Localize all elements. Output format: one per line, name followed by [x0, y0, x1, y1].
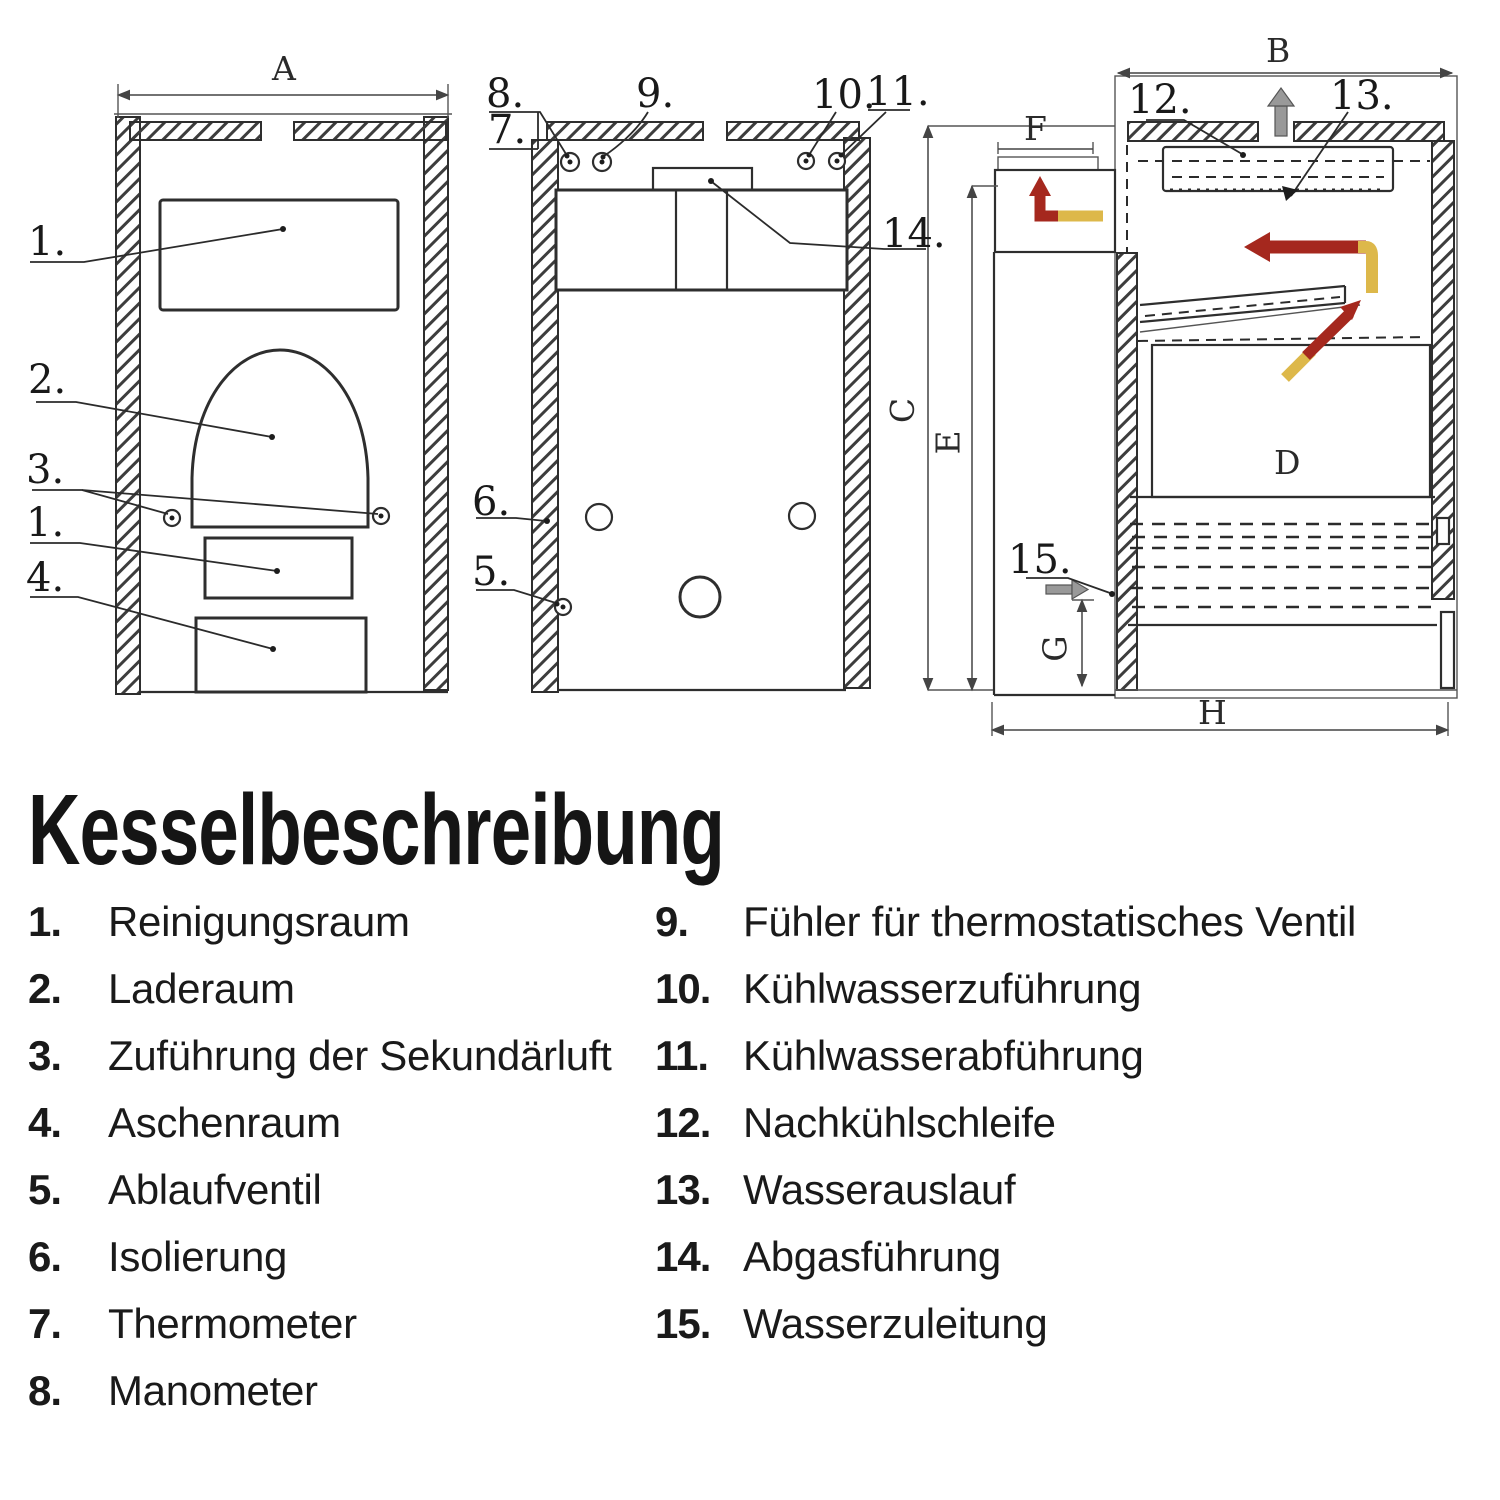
callout-13-side: 13.	[1330, 76, 1394, 116]
legend-item-number: 9.	[655, 898, 743, 946]
flue-gas-outlet	[653, 168, 752, 190]
rear-top-panel	[556, 190, 847, 290]
legend-item: 2.Laderaum	[28, 965, 612, 1032]
callout-7-rear: 7.	[488, 110, 526, 150]
rear-port-center	[680, 577, 720, 617]
side-section-view	[928, 73, 1457, 736]
legend-item-number: 8.	[28, 1367, 108, 1415]
dim-letter-b: B	[1266, 34, 1290, 67]
page-title: Kesselbeschreibung	[28, 772, 724, 887]
middle-door	[205, 538, 352, 598]
callout-14-rear: 14.	[882, 214, 946, 254]
dim-letter-e: E	[932, 430, 965, 454]
legend-item: 11.Kühlwasserabführung	[655, 1032, 1356, 1099]
after-cooling-loop	[1163, 147, 1393, 191]
legend-item-number: 12.	[655, 1099, 743, 1147]
dim-letter-c: C	[886, 398, 919, 423]
legend-item-number: 10.	[655, 965, 743, 1013]
callout-2-front: 2.	[28, 360, 66, 400]
water-outlet-arrow-icon	[1268, 88, 1294, 136]
legend-item-label: Wasserzuleitung	[743, 1300, 1047, 1348]
legend-item-number: 3.	[28, 1032, 108, 1080]
legend-item-number: 1.	[28, 898, 108, 946]
technical-drawings: 1. 2. 3. 1. 4. 8. 7. 9. 10. 11. 14. 6. 5…	[0, 0, 1500, 770]
legend-item: 13.Wasserauslauf	[655, 1166, 1356, 1233]
legend-item-label: Manometer	[108, 1367, 318, 1415]
legend-item-number: 5.	[28, 1166, 108, 1214]
legend-item-label: Aschenraum	[108, 1099, 341, 1147]
ash-chamber-door	[196, 618, 366, 692]
callout-12-side: 12.	[1128, 80, 1192, 120]
legend-item: 8.Manometer	[28, 1367, 612, 1434]
legend-item: 14.Abgasführung	[655, 1233, 1356, 1300]
legend-item-label: Wasserauslauf	[743, 1166, 1015, 1214]
legend-item-number: 2.	[28, 965, 108, 1013]
cleaning-chamber-door	[160, 200, 398, 310]
kesselbeschreibung-page: 1. 2. 3. 1. 4. 8. 7. 9. 10. 11. 14. 6. 5…	[0, 0, 1500, 1500]
dim-letter-h: H	[1198, 696, 1227, 729]
legend-item-label: Ablaufventil	[108, 1166, 322, 1214]
legend-item-label: Fühler für thermostatisches Ventil	[743, 898, 1356, 946]
legend-item-number: 4.	[28, 1099, 108, 1147]
legend-item-label: Nachkühlschleife	[743, 1099, 1056, 1147]
flow-arrow-upper-chamber	[1244, 232, 1372, 293]
rear-port-right	[789, 503, 815, 529]
legend-item-label: Kühlwasserzuführung	[743, 965, 1141, 1013]
legend-item: 3.Zuführung der Sekundärluft	[28, 1032, 612, 1099]
legend-item-number: 7.	[28, 1300, 108, 1348]
legend-column-right: 9.Fühler für thermostatisches Ventil 10.…	[655, 898, 1356, 1367]
dim-letter-g: G	[1039, 635, 1072, 661]
legend-item-label: Laderaum	[108, 965, 295, 1013]
rear-port-left	[586, 504, 612, 530]
callout-3-front: 3.	[26, 450, 64, 490]
side-door-hinge-lower	[1441, 612, 1454, 688]
legend-item-label: Abgasführung	[743, 1233, 1001, 1281]
legend-item: 7.Thermometer	[28, 1300, 612, 1367]
callout-6-rear: 6.	[472, 482, 510, 522]
side-door-hinge-upper	[1437, 518, 1449, 544]
legend-item-label: Zuführung der Sekundärluft	[108, 1032, 612, 1080]
front-view	[30, 84, 452, 694]
legend-item-number: 13.	[655, 1166, 743, 1214]
legend-item: 6.Isolierung	[28, 1233, 612, 1300]
legend-item: 9.Fühler für thermostatisches Ventil	[655, 898, 1356, 965]
legend-item: 1.Reinigungsraum	[28, 898, 612, 965]
legend-item: 5.Ablaufventil	[28, 1166, 612, 1233]
dim-letter-f: F	[1024, 112, 1047, 145]
legend-item-number: 6.	[28, 1233, 108, 1281]
callout-11-rear: 11.	[866, 72, 930, 112]
callout-9-rear: 9.	[636, 74, 674, 114]
legend-item: 12.Nachkühlschleife	[655, 1099, 1356, 1166]
rear-view	[476, 110, 926, 692]
callout-15-side: 15.	[1008, 540, 1072, 580]
callout-5-rear: 5.	[472, 552, 510, 592]
legend-item-label: Kühlwasserabführung	[743, 1032, 1144, 1080]
rear-left-wall-hatch	[532, 140, 558, 692]
callout-1-front: 1.	[28, 222, 66, 262]
legend-item: 15.Wasserzuleitung	[655, 1300, 1356, 1367]
front-right-wall-hatch	[424, 117, 448, 690]
legend-item-number: 11.	[655, 1032, 743, 1080]
legend-item-label: Isolierung	[108, 1233, 287, 1281]
tube-bank-dashes	[1130, 524, 1437, 607]
legend-column-left: 1.Reinigungsraum 2.Laderaum 3.Zuführung …	[28, 898, 612, 1434]
legend-item: 10.Kühlwasserzuführung	[655, 965, 1356, 1032]
callout-4-front: 4.	[26, 558, 64, 598]
dim-letter-a: A	[272, 52, 296, 85]
legend-item-number: 15.	[655, 1300, 743, 1348]
legend-item-number: 14.	[655, 1233, 743, 1281]
legend-item: 4.Aschenraum	[28, 1099, 612, 1166]
boiler-line-art	[0, 0, 1500, 770]
dim-letter-d: D	[1274, 446, 1300, 479]
legend-item-label: Thermometer	[108, 1300, 357, 1348]
legend-item-label: Reinigungsraum	[108, 898, 410, 946]
callout-1b-front: 1.	[26, 503, 64, 543]
